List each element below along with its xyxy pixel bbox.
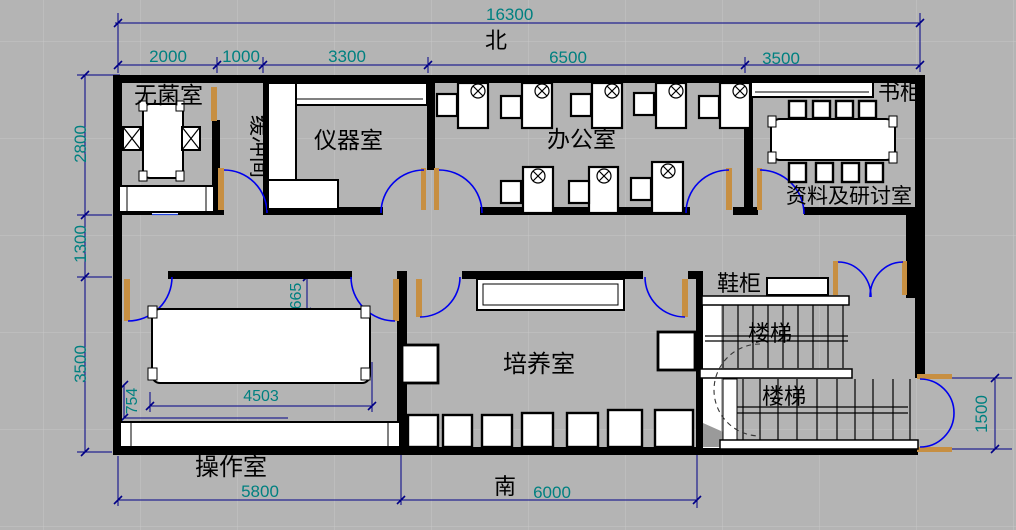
door-leaf-entrance-top — [917, 374, 952, 379]
floor-plan-canvas: 16300 2000 1000 3300 6500 3500 2800 1300… — [0, 0, 1016, 530]
door-leaf-sterile — [211, 87, 217, 121]
dim-left-0: 2800 — [71, 125, 90, 163]
dim-left-1: 1300 — [71, 225, 90, 263]
dim-top-1: 1000 — [222, 47, 260, 66]
office-desks-bottom — [501, 162, 683, 213]
dim-left-2: 3500 — [71, 345, 90, 383]
shoe-cabinet — [767, 278, 828, 295]
door-leaf-office-left — [434, 168, 439, 210]
room-sterile: 无菌室 — [119, 82, 214, 212]
equipment — [402, 345, 438, 383]
fixture-label-bookcase: 书柜 — [878, 80, 922, 105]
dim-top-0: 2000 — [149, 47, 187, 66]
room-buffer: 缓冲间 — [247, 115, 270, 178]
door-leaf-culture-left — [416, 279, 422, 317]
cad-floor-plan: 16300 2000 1000 3300 6500 3500 2800 1300… — [0, 0, 1016, 530]
room-label-sterile: 无菌室 — [134, 82, 203, 108]
door-leaf-instrument — [421, 168, 426, 210]
dim-op-offset: 754 — [124, 388, 141, 415]
room-label-stairs-upper: 楼梯 — [748, 321, 792, 346]
work-table — [152, 309, 370, 383]
bench — [120, 422, 400, 447]
door-leaf-stairhall-right — [902, 261, 907, 295]
conference-table — [771, 119, 895, 160]
dim-top-3: 6500 — [549, 48, 587, 67]
dim-op-width: 4503 — [243, 388, 279, 405]
room-label-culture: 培养室 — [503, 351, 575, 378]
dim-total-width: 16300 — [486, 5, 533, 24]
dim-top-4: 3500 — [762, 49, 800, 68]
dim-top-2: 3300 — [328, 47, 366, 66]
room-label-office: 办公室 — [547, 126, 616, 152]
dim-bottom-1: 6000 — [533, 483, 571, 502]
stool-left — [123, 127, 141, 150]
room-label-operation: 操作室 — [195, 454, 267, 481]
dim-bottom-0: 5800 — [241, 482, 279, 501]
room-label-instrument: 仪器室 — [314, 127, 383, 153]
door-leaf-entrance-bottom — [917, 447, 952, 452]
orientation-north: 北 — [485, 28, 507, 53]
room-label-stairs-lower: 楼梯 — [762, 384, 806, 409]
orientation-south: 南 — [494, 474, 516, 499]
bookcase — [751, 82, 873, 97]
door-leaf-operation-right — [393, 279, 399, 321]
stair-rail — [700, 369, 852, 378]
door-leaf-archive — [757, 168, 762, 210]
stair-rail — [720, 440, 918, 449]
dim-right-0: 1500 — [972, 395, 991, 433]
stair-rail — [702, 296, 849, 305]
door-leaf-operation-left — [124, 279, 130, 321]
door-leaf-buffer — [218, 168, 224, 210]
equipment — [658, 332, 695, 370]
room-label-archive: 资料及研讨室 — [786, 185, 912, 208]
dim-door: 665 — [288, 283, 305, 310]
bench — [119, 186, 214, 212]
room-label-buffer: 缓冲间 — [247, 115, 270, 178]
door-leaf-stairhall-left — [833, 261, 838, 295]
stool-right — [182, 127, 200, 150]
fixture-label-shoe-cabinet: 鞋柜 — [717, 271, 761, 296]
door-leaf-culture-right — [682, 279, 688, 317]
door-leaf-office-right — [726, 168, 732, 210]
